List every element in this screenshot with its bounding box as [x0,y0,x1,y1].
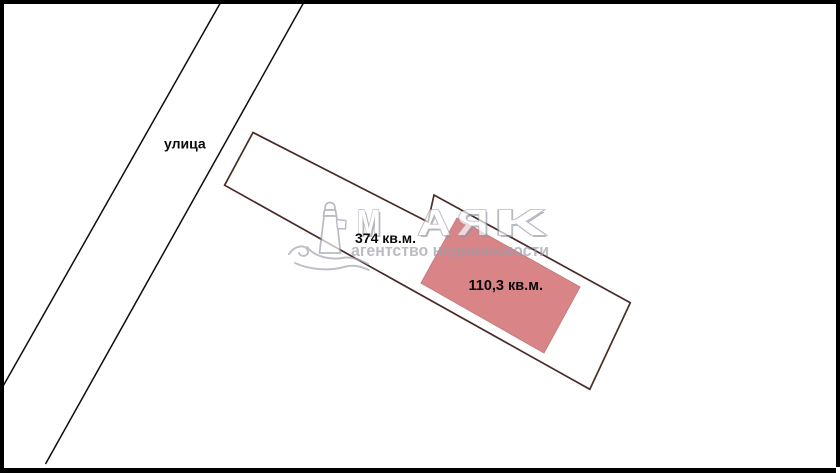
svg-text:110,3 кв.м.: 110,3 кв.м. [469,278,543,294]
svg-text:К: К [494,202,548,243]
svg-text:Я: Я [457,202,489,243]
svg-text:374 кв.м.: 374 кв.м. [355,230,416,246]
svg-text:А: А [418,202,452,243]
svg-text:улица: улица [164,136,206,152]
